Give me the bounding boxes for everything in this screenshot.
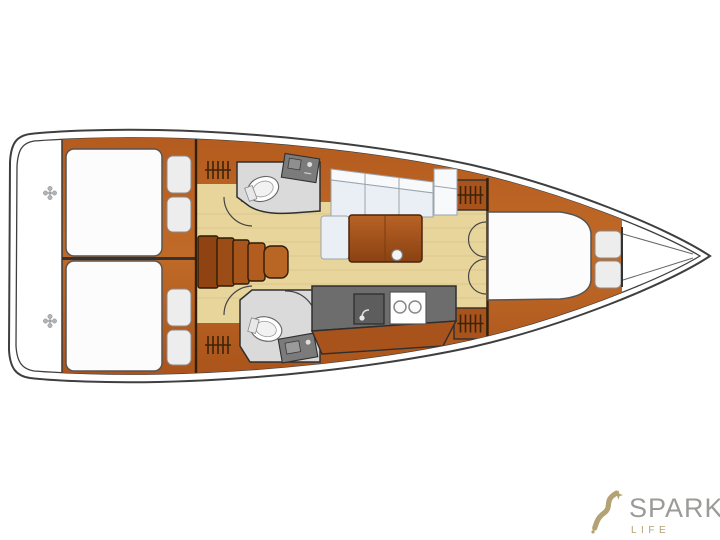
burner-icon [409,301,421,313]
bow-cushion [595,261,621,288]
yacht-floor-plan [0,0,720,540]
logo-brand: SPARKS [629,495,720,522]
galley [312,286,456,354]
v-berth [488,212,591,300]
boat-floor-plan-canvas: SPARKS LIFE [0,0,720,540]
aft-cushion [167,197,191,232]
aft-cushion [167,330,191,365]
aft-berth-top [66,149,162,256]
table-leaf-knob [392,250,403,261]
settee-arm-seat [434,169,457,215]
sparks-life-logo: SPARKS LIFE [590,489,720,536]
aft-berth-bottom [66,261,162,371]
logo-text: SPARKS LIFE [629,495,720,536]
galley-sink [354,294,384,324]
logo-subtitle: LIFE [631,525,720,536]
bow-cushion [595,231,621,258]
salon-end-seat [321,216,349,259]
sink-vanity-top [281,153,319,182]
sparkle-swoosh-icon [590,489,624,535]
burner-icon [394,301,406,313]
aft-cushion [167,289,191,326]
aft-cushion [167,156,191,193]
